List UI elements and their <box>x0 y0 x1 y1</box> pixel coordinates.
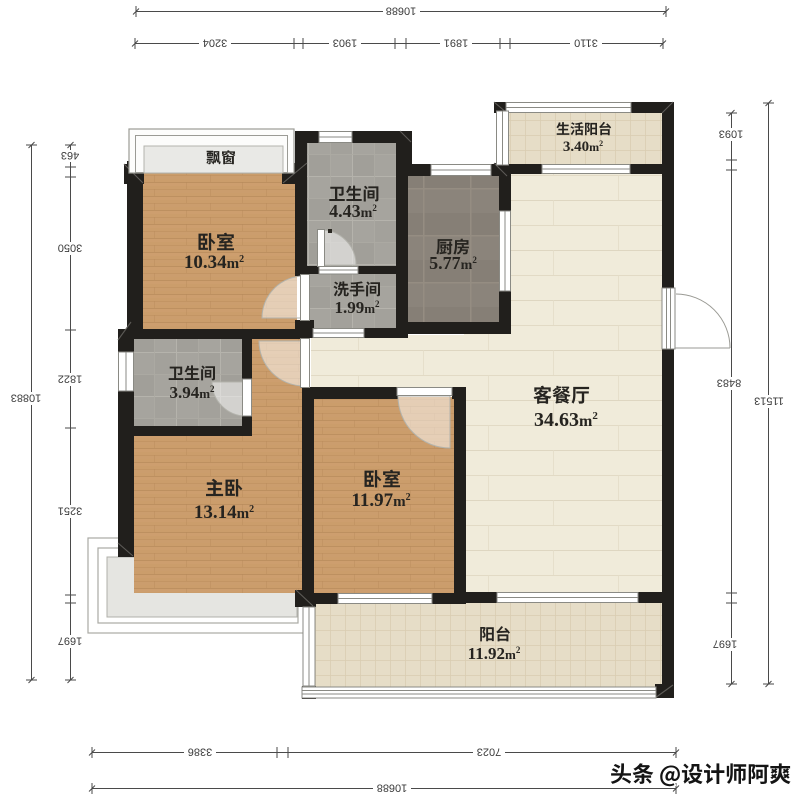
svg-text:1903: 1903 <box>333 37 357 49</box>
svg-text:10.34m2: 10.34m2 <box>184 252 244 273</box>
svg-text:13.14m2: 13.14m2 <box>194 502 254 523</box>
svg-text:11.97m2: 11.97m2 <box>351 490 410 511</box>
svg-text:10688: 10688 <box>377 782 408 794</box>
svg-text:3.40m2: 3.40m2 <box>563 139 603 155</box>
svg-text:1891: 1891 <box>444 37 468 49</box>
svg-text:3204: 3204 <box>203 37 227 49</box>
svg-text:11.92m2: 11.92m2 <box>468 644 521 663</box>
svg-text:463: 463 <box>61 149 79 161</box>
svg-text:10688: 10688 <box>386 5 417 17</box>
svg-text:1093: 1093 <box>719 128 743 140</box>
svg-text:3110: 3110 <box>574 37 598 49</box>
svg-text:8483: 8483 <box>717 377 741 389</box>
svg-text:1697: 1697 <box>58 635 82 647</box>
svg-text:3251: 3251 <box>58 505 82 517</box>
svg-text:3050: 3050 <box>58 242 82 254</box>
svg-text:11513: 11513 <box>754 395 784 407</box>
svg-text:10883: 10883 <box>11 392 42 404</box>
svg-text:3.94m2: 3.94m2 <box>169 383 215 402</box>
svg-text:1697: 1697 <box>713 638 737 650</box>
svg-text:1.99m2: 1.99m2 <box>334 298 380 317</box>
svg-text:34.63m2: 34.63m2 <box>534 409 598 431</box>
svg-text:7023: 7023 <box>477 746 501 758</box>
svg-text:3386: 3386 <box>188 746 212 758</box>
svg-text:1822: 1822 <box>58 373 82 385</box>
